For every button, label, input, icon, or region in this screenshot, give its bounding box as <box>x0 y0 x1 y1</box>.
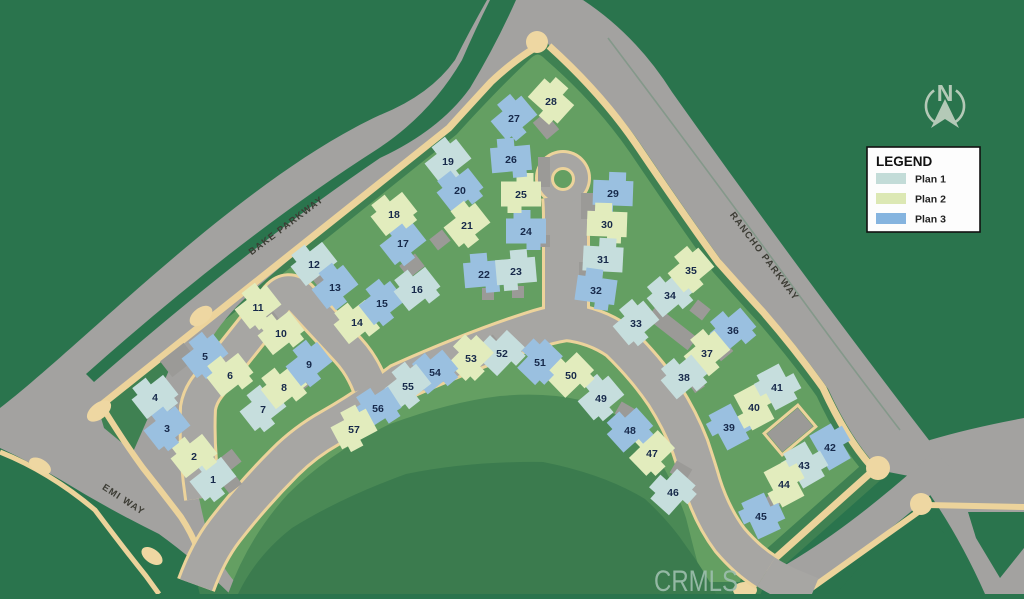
svg-text:16: 16 <box>411 284 423 296</box>
svg-text:10: 10 <box>275 328 287 340</box>
svg-text:54: 54 <box>429 367 441 379</box>
svg-text:11: 11 <box>252 302 263 314</box>
svg-text:17: 17 <box>397 238 409 250</box>
svg-text:29: 29 <box>607 188 619 200</box>
svg-text:14: 14 <box>351 317 363 329</box>
svg-text:1: 1 <box>210 474 216 486</box>
svg-text:35: 35 <box>685 265 697 277</box>
svg-text:42: 42 <box>824 442 836 454</box>
svg-text:15: 15 <box>376 298 388 310</box>
svg-text:30: 30 <box>601 219 613 231</box>
svg-text:44: 44 <box>778 479 790 491</box>
svg-text:Plan 1: Plan 1 <box>915 174 946 186</box>
svg-text:CRMLS: CRMLS <box>654 565 738 594</box>
svg-text:34: 34 <box>664 290 676 302</box>
svg-text:6: 6 <box>227 370 233 382</box>
svg-text:40: 40 <box>748 402 760 414</box>
svg-text:47: 47 <box>646 448 658 460</box>
svg-text:56: 56 <box>372 403 384 415</box>
svg-text:57: 57 <box>348 424 360 436</box>
svg-text:46: 46 <box>667 487 679 499</box>
svg-text:21: 21 <box>461 220 473 232</box>
svg-text:19: 19 <box>442 156 454 168</box>
svg-text:31: 31 <box>597 254 609 266</box>
svg-text:24: 24 <box>520 226 532 238</box>
svg-text:Plan 2: Plan 2 <box>915 194 946 206</box>
svg-text:53: 53 <box>465 353 477 365</box>
svg-text:9: 9 <box>306 359 312 371</box>
svg-text:LEGEND: LEGEND <box>876 154 933 169</box>
svg-text:37: 37 <box>701 348 713 360</box>
svg-text:23: 23 <box>510 266 522 278</box>
svg-text:50: 50 <box>565 370 577 382</box>
svg-text:52: 52 <box>496 348 508 360</box>
svg-text:25: 25 <box>515 189 527 201</box>
svg-text:51: 51 <box>534 357 546 369</box>
svg-text:33: 33 <box>630 318 642 330</box>
svg-text:2: 2 <box>191 451 197 463</box>
svg-text:20: 20 <box>454 185 466 197</box>
svg-text:18: 18 <box>388 209 400 221</box>
svg-text:8: 8 <box>281 382 287 394</box>
svg-text:26: 26 <box>505 154 517 166</box>
svg-text:28: 28 <box>545 96 557 108</box>
svg-text:13: 13 <box>329 282 341 294</box>
svg-text:41: 41 <box>771 382 783 394</box>
svg-text:27: 27 <box>508 113 520 125</box>
svg-text:45: 45 <box>755 511 767 523</box>
svg-text:36: 36 <box>727 325 739 337</box>
svg-text:22: 22 <box>478 269 490 281</box>
svg-text:55: 55 <box>402 381 414 393</box>
svg-text:5: 5 <box>202 351 208 363</box>
svg-text:4: 4 <box>152 392 158 404</box>
svg-text:49: 49 <box>595 393 607 405</box>
svg-text:12: 12 <box>308 259 320 271</box>
svg-text:39: 39 <box>723 422 735 434</box>
svg-text:32: 32 <box>590 285 602 297</box>
svg-text:3: 3 <box>164 423 170 435</box>
svg-text:7: 7 <box>260 404 266 416</box>
svg-text:38: 38 <box>678 372 690 384</box>
svg-text:48: 48 <box>624 425 636 437</box>
svg-text:Plan 3: Plan 3 <box>915 214 946 226</box>
